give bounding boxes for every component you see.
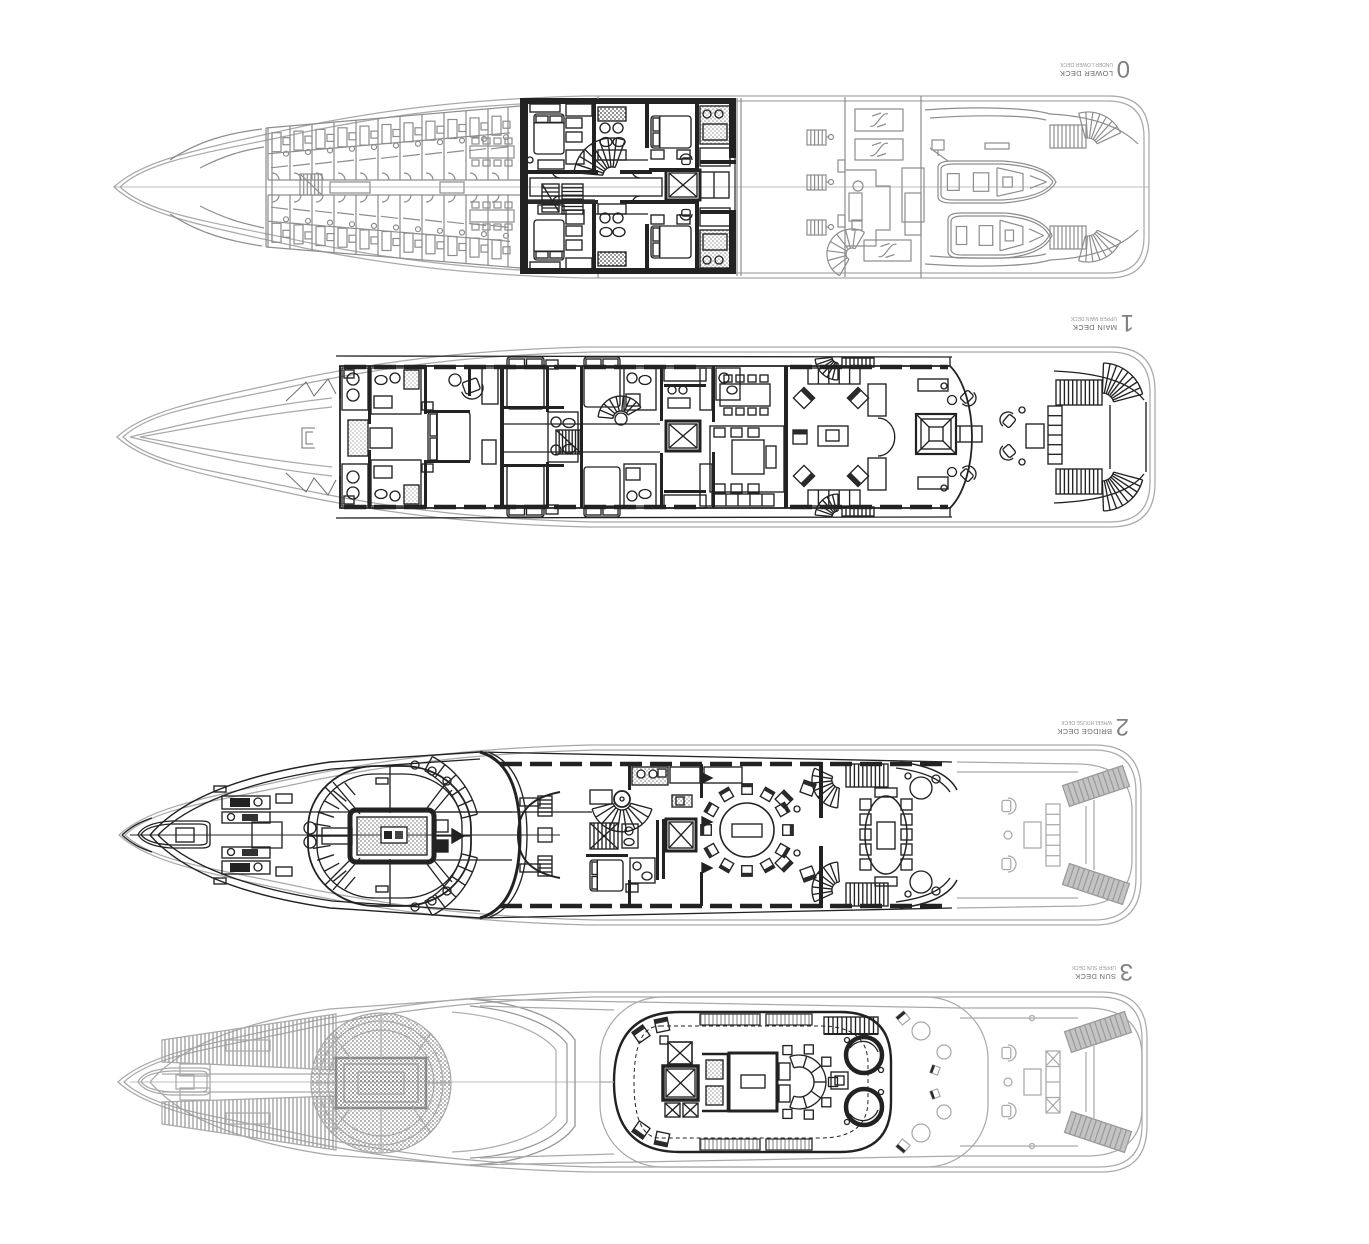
- svg-text:2: 2: [1116, 713, 1129, 740]
- svg-text:UPPER MAIN DECK: UPPER MAIN DECK: [1070, 315, 1117, 321]
- svg-text:LOWER DECK: LOWER DECK: [1060, 69, 1113, 78]
- svg-text:0: 0: [1117, 55, 1130, 82]
- svg-text:3: 3: [1120, 958, 1133, 985]
- svg-text:BRIDGE DECK: BRIDGE DECK: [1057, 727, 1112, 736]
- svg-text:UNDER LOWER DECK: UNDER LOWER DECK: [1060, 61, 1113, 67]
- svg-text:MAIN DECK: MAIN DECK: [1073, 323, 1117, 332]
- svg-text:SUN DECK: SUN DECK: [1075, 972, 1116, 981]
- svg-text:1: 1: [1121, 309, 1134, 336]
- svg-text:WHEELHOUSE DECK: WHEELHOUSE DECK: [1060, 719, 1112, 725]
- svg-text:UPPER SUN DECK: UPPER SUN DECK: [1071, 964, 1116, 970]
